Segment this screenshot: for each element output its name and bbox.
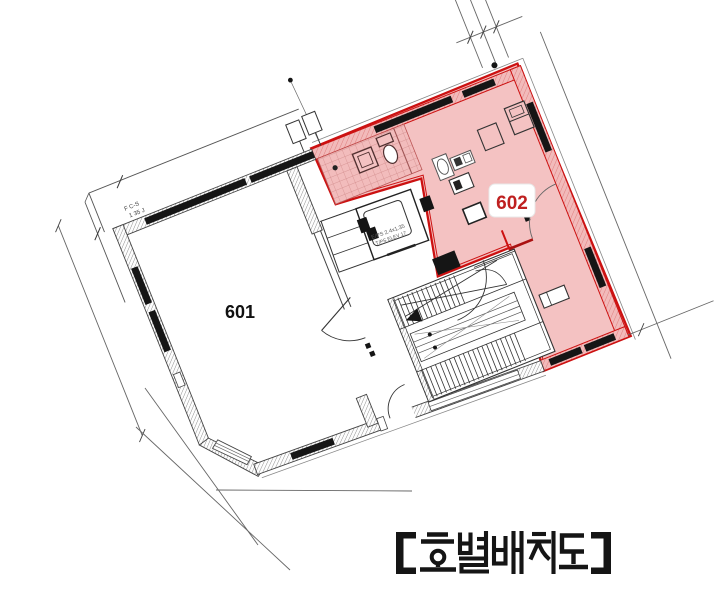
svg-text:602: 602 (496, 193, 528, 214)
svg-text:601: 601 (225, 302, 255, 322)
